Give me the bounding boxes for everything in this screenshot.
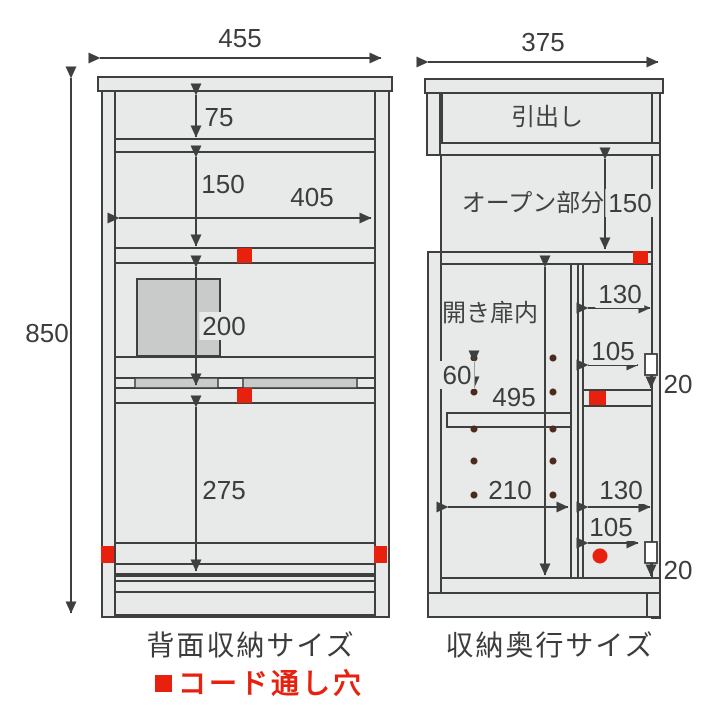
right-counter-board xyxy=(440,143,660,155)
cord-hole-marker xyxy=(633,251,648,264)
dim-door-depth-label: 210 xyxy=(485,476,534,504)
cord-hole-legend-icon xyxy=(155,675,172,692)
left-view-caption: 背面収納サイズ xyxy=(146,632,355,660)
cord-hole-legend-label: コード通し穴 xyxy=(178,670,364,698)
cord-hole-marker xyxy=(589,391,606,405)
dim-right-width-label: 375 xyxy=(521,29,564,55)
dim-upper-inner-depth-label: 105 xyxy=(588,337,637,365)
right-top-board xyxy=(425,79,663,93)
cord-hole-marker xyxy=(374,546,387,563)
dim-lower-gap-label: 20 xyxy=(664,557,693,583)
left-top-board xyxy=(98,77,392,91)
dim-middle-label: 200 xyxy=(199,312,248,340)
right-door-shelf xyxy=(447,413,571,427)
drawer-label: 引出し xyxy=(511,106,583,130)
dim-inner-width-label: 405 xyxy=(287,183,336,211)
dim-left-height-label: 850 xyxy=(25,320,68,346)
door-catch xyxy=(645,542,657,563)
dim-pin-pitch-label: 60 xyxy=(440,361,475,389)
right-bottom-board xyxy=(441,578,660,593)
dim-door-height-label: 495 xyxy=(489,383,538,411)
right-base xyxy=(428,593,660,617)
cord-hole-marker xyxy=(237,248,252,263)
dim-top-shelf-label: 75 xyxy=(202,103,237,131)
diagram-canvas: 455 850 75 150 405 200 275 375 引出し オープン部… xyxy=(0,0,720,720)
dim-left-width-label: 455 xyxy=(218,25,261,51)
dim-open-height-label: 150 xyxy=(605,189,654,217)
cord-hole-marker xyxy=(101,546,114,563)
dim-upper-gap-label: 20 xyxy=(664,371,693,397)
door-inside-label: 開き扉内 xyxy=(442,302,538,326)
cord-hole-round-marker xyxy=(593,549,608,564)
door-catch xyxy=(645,354,657,375)
right-upper-front-wall xyxy=(427,93,440,155)
left-cabinet xyxy=(98,77,392,617)
open-part-label: オープン部分 xyxy=(462,192,605,216)
right-lower-front-wall xyxy=(428,252,441,617)
right-view-caption: 収納奥行サイズ xyxy=(445,632,654,660)
cord-hole-marker xyxy=(237,388,252,403)
dim-lower-label: 275 xyxy=(199,476,248,504)
left-slide-rail xyxy=(135,378,357,388)
dim-lower-depth-label: 130 xyxy=(596,476,645,504)
dim-upper-open-label: 150 xyxy=(198,170,247,198)
left-base-thick-line xyxy=(115,573,375,577)
dim-upper-depth-label: 130 xyxy=(595,280,644,308)
dim-lower-inner-depth-label: 105 xyxy=(586,513,635,541)
